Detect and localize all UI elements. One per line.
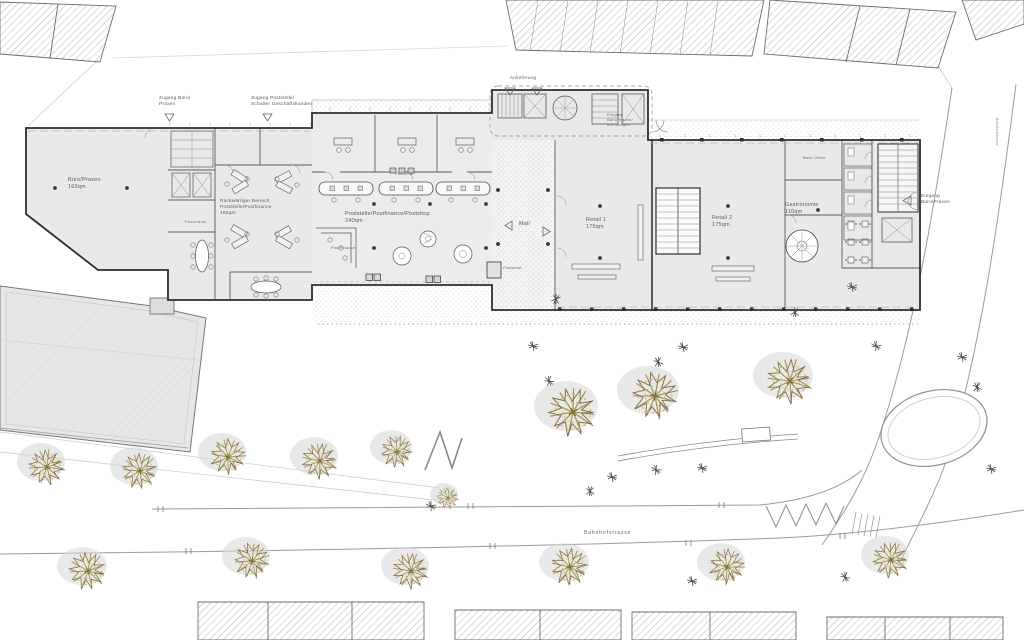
pond <box>872 378 995 477</box>
label-rueckwaertiger-bereich: Rückwärtiger Bereich Poststelle/Postfina… <box>220 199 272 218</box>
site-plan: Zugang Büro/ Praxen Zugang Poststelle/ S… <box>0 0 1024 640</box>
label-retail-2: Retail 2 175qm <box>712 215 732 229</box>
label-gastronomie: Gastronomie 110qm <box>785 202 819 216</box>
label-bahnhofstrasse: Bahnhofstrasse <box>584 530 631 537</box>
label-anlieferung: Anlieferung <box>510 76 536 82</box>
label-zugang-buero-praxen: Zugang Büro/ Praxen <box>159 96 190 108</box>
label-postomat-mall: Postomat <box>503 265 522 270</box>
label-retail-1: Retail 1 175qm <box>586 217 606 231</box>
label-side-street: Bahnhofstrasse <box>994 118 999 146</box>
label-postfinance: PostFinance <box>331 245 355 250</box>
label-eingang-wohnungen: Eingang Büro/Praxen/ Wohnungen <box>607 112 633 128</box>
label-poststelle: Poststelle/Postfinance/Postshop 240qm <box>345 211 430 225</box>
label-eingang-buero-praxen: Eingang Büro/Praxen <box>921 194 950 206</box>
existing-building-left <box>0 286 206 452</box>
label-mall: Mall <box>519 221 530 228</box>
site-furniture <box>425 378 996 538</box>
label-tresorraum: Tresorraum <box>184 219 207 224</box>
label-buero-praxen: Büro/Praxen 163qm <box>68 177 101 191</box>
label-back-office: Back Office <box>803 155 826 160</box>
label-zugang-poststelle: Zugang Poststelle/ Schalter Geschäftskun… <box>251 96 312 108</box>
floor-plan-svg <box>0 0 1024 640</box>
label-postomat-halle: Postomat <box>395 171 414 176</box>
